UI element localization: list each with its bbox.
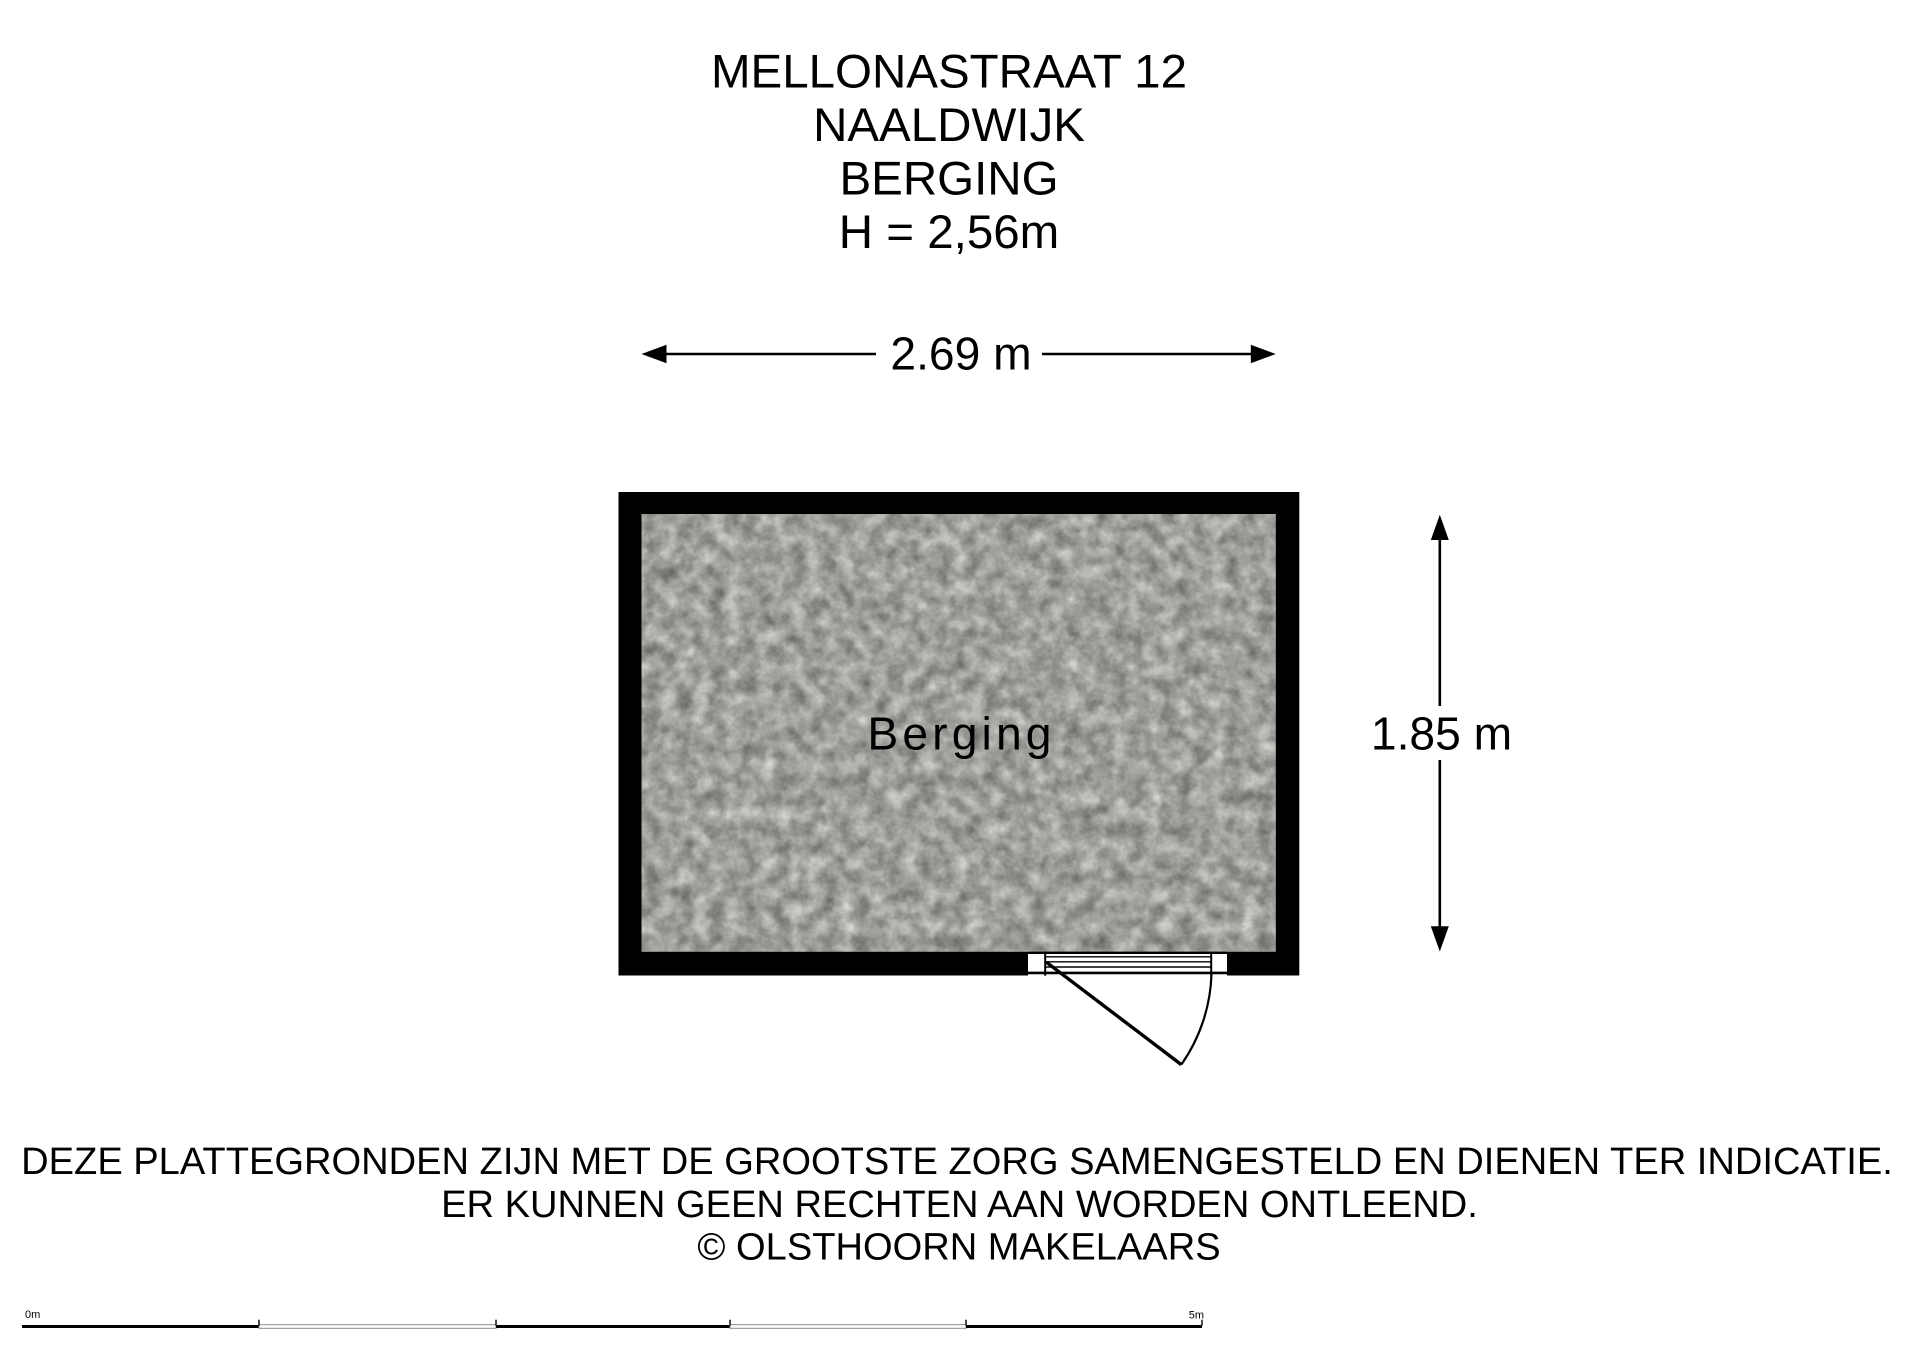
svg-text:1.85 m: 1.85 m	[1371, 707, 1512, 759]
svg-text:MELLONASTRAAT 12: MELLONASTRAAT 12	[711, 46, 1187, 99]
svg-text:0m: 0m	[25, 1309, 40, 1321]
svg-text:© OLSTHOORN MAKELAARS: © OLSTHOORN MAKELAARS	[697, 1227, 1220, 1269]
svg-text:NAALDWIJK: NAALDWIJK	[813, 99, 1085, 152]
svg-text:5m: 5m	[1189, 1310, 1204, 1322]
svg-text:DEZE PLATTEGRONDEN ZIJN MET DE: DEZE PLATTEGRONDEN ZIJN MET DE GROOTSTE …	[21, 1141, 1893, 1183]
svg-text:H = 2,56m: H = 2,56m	[839, 206, 1059, 259]
svg-text:BERGING: BERGING	[839, 153, 1058, 206]
svg-text:ER KUNNEN GEEN RECHTEN AAN WOR: ER KUNNEN GEEN RECHTEN AAN WORDEN ONTLEE…	[441, 1184, 1478, 1226]
svg-text:2.69 m: 2.69 m	[890, 328, 1031, 380]
svg-text:Berging: Berging	[867, 708, 1055, 760]
